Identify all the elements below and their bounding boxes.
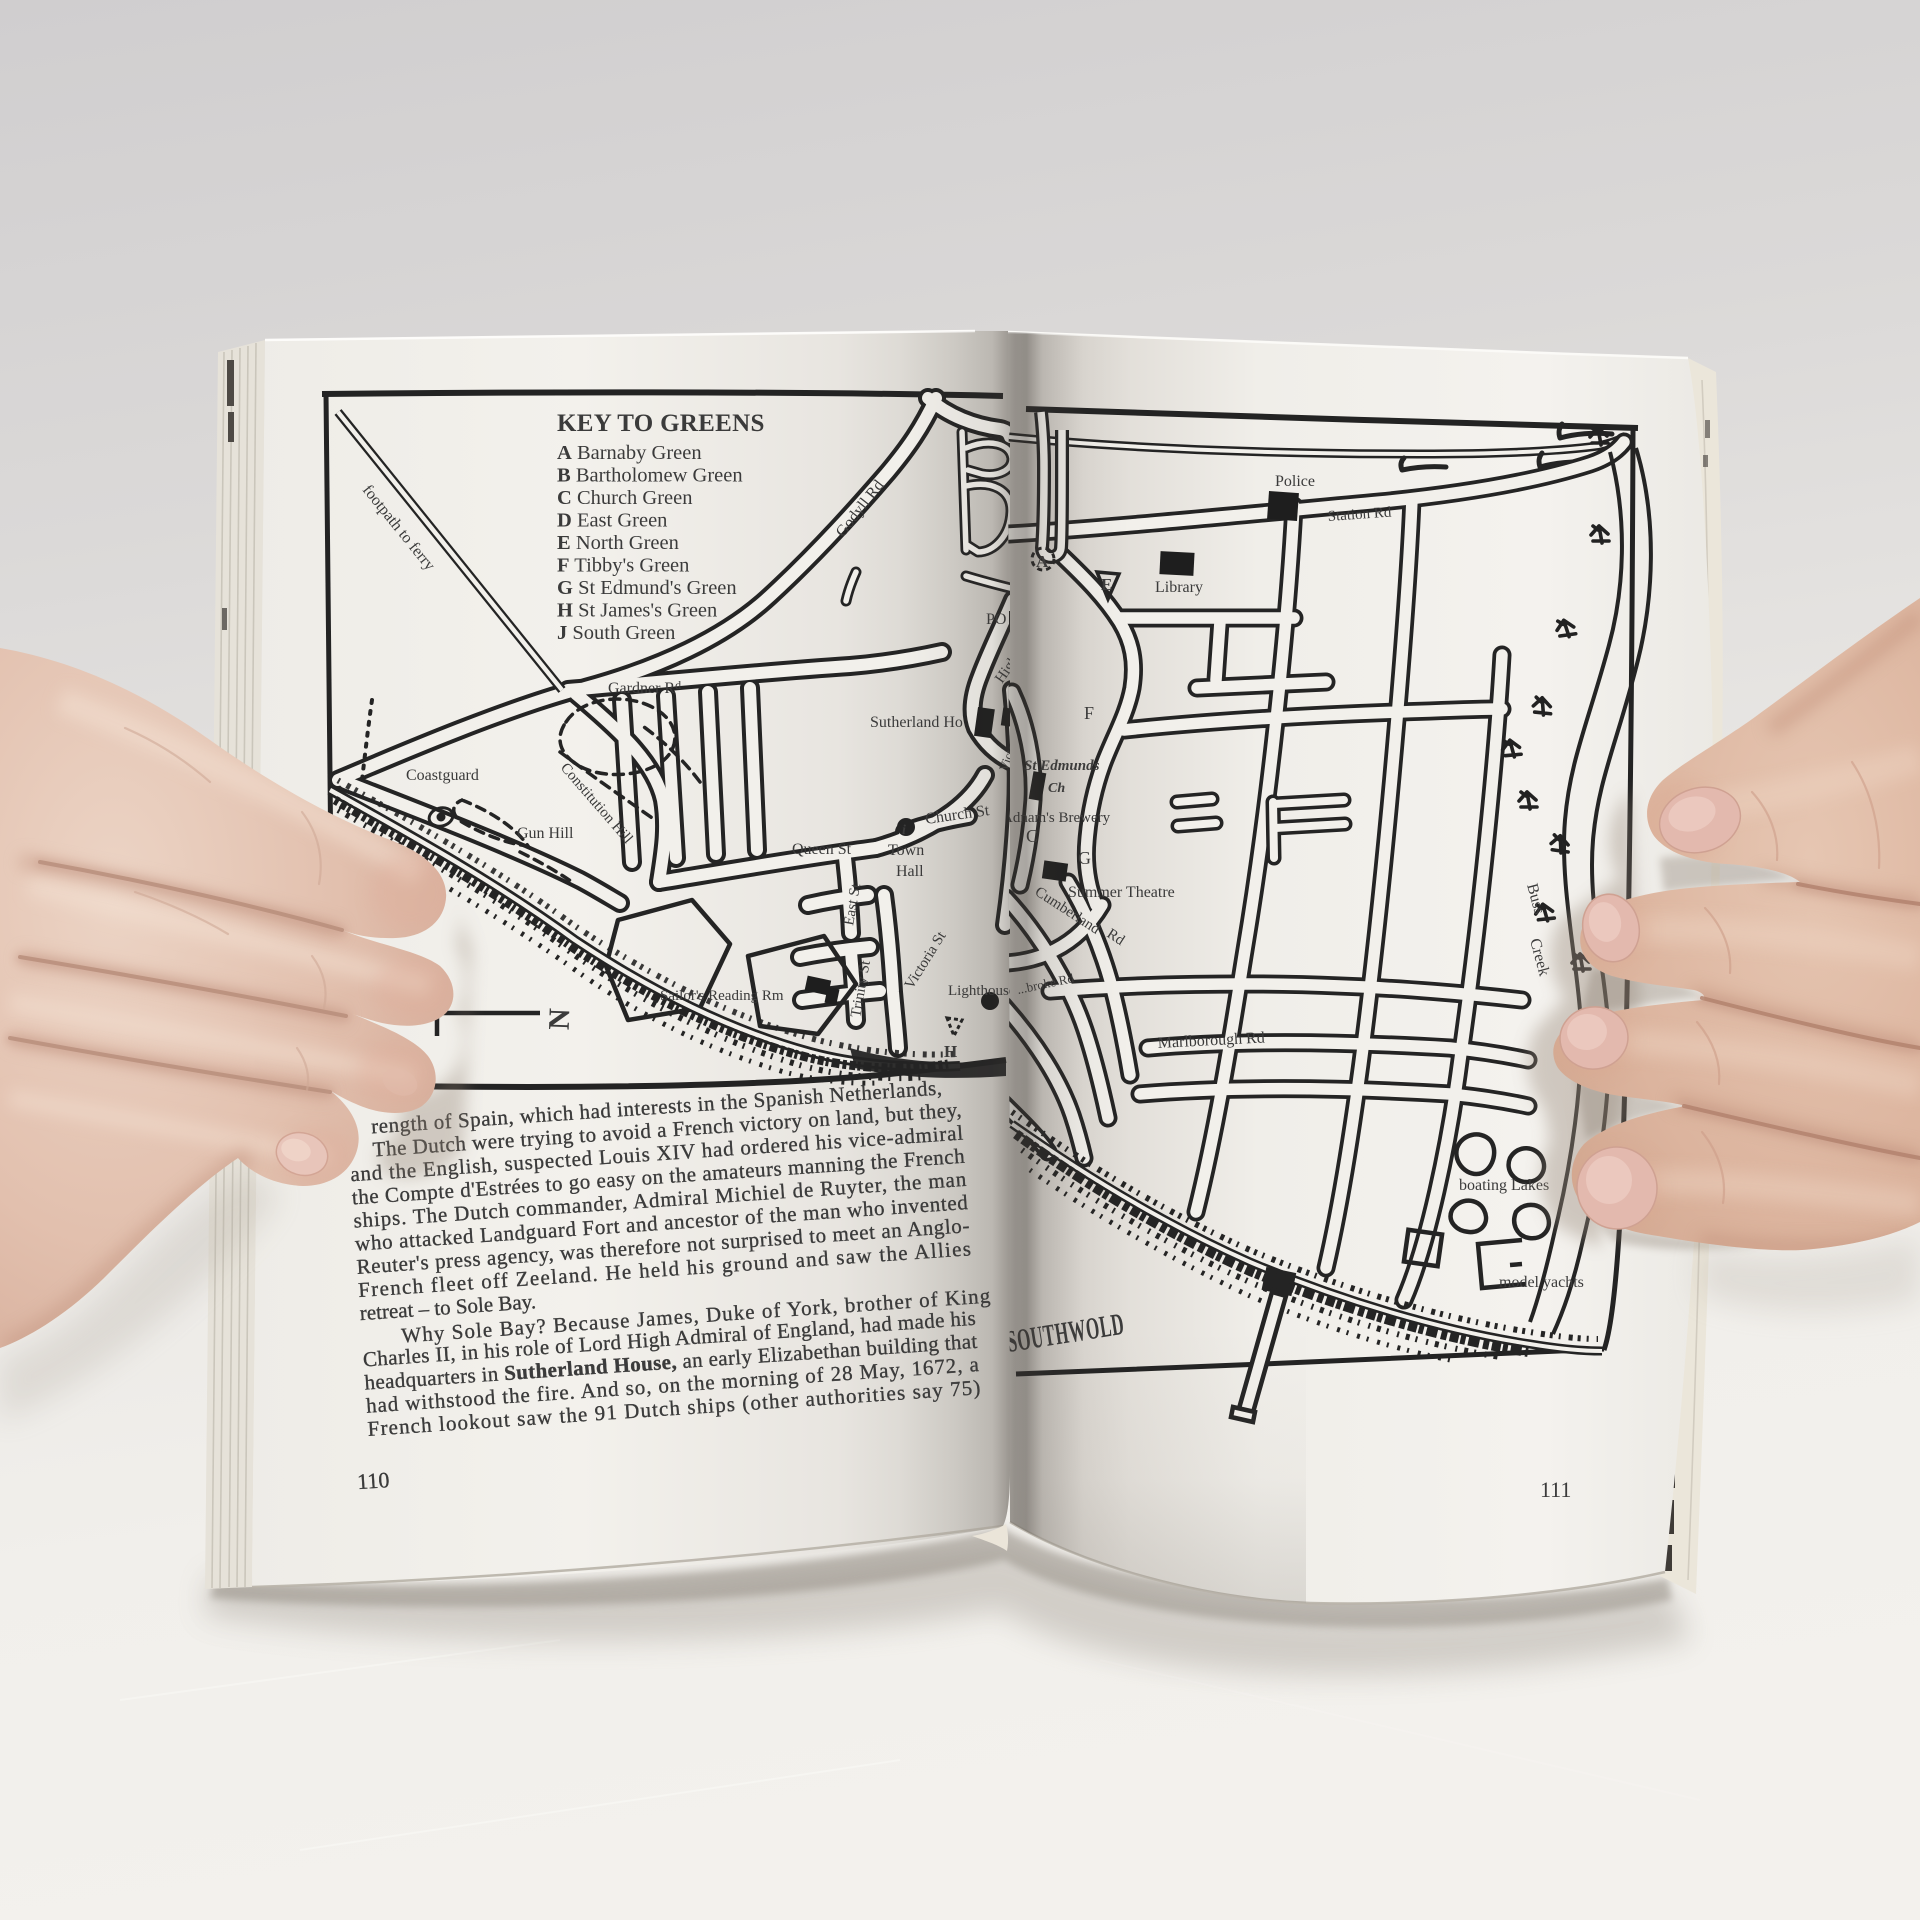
svg-text:111: 111 [1540,1477,1571,1502]
svg-text:B Bartholomew Green: B Bartholomew Green [557,465,743,487]
svg-text:KEY TO GREENS: KEY TO GREENS [557,410,765,437]
svg-text:boating Lakes: boating Lakes [1459,1177,1549,1194]
svg-text:H St James's Green: H St James's Green [557,600,717,622]
svg-text:D East Green: D East Green [557,510,667,532]
svg-text:A Barnaby Green: A Barnaby Green [557,442,702,464]
svg-text:Sailor's Reading Rm: Sailor's Reading Rm [660,988,784,1004]
svg-text:Gardner Rd: Gardner Rd [608,678,681,697]
svg-text:G St Edmund's Green: G St Edmund's Green [557,577,737,599]
svg-text:Library: Library [1155,579,1203,596]
svg-text:Police: Police [1275,473,1315,490]
svg-text:110: 110 [356,1467,390,1494]
svg-text:Coastguard: Coastguard [406,767,479,784]
svg-text:F Tibby's Green: F Tibby's Green [557,555,689,577]
svg-text:J South Green: J South Green [557,622,675,644]
svg-text:C Church Green: C Church Green [557,487,693,509]
svg-text:N: N [543,1007,577,1030]
svg-text:E North Green: E North Green [557,532,679,554]
svg-text:Gun Hill: Gun Hill [517,825,574,842]
svg-text:Queen St: Queen St [792,841,852,858]
svg-text:model yachts: model yachts [1499,1274,1584,1291]
